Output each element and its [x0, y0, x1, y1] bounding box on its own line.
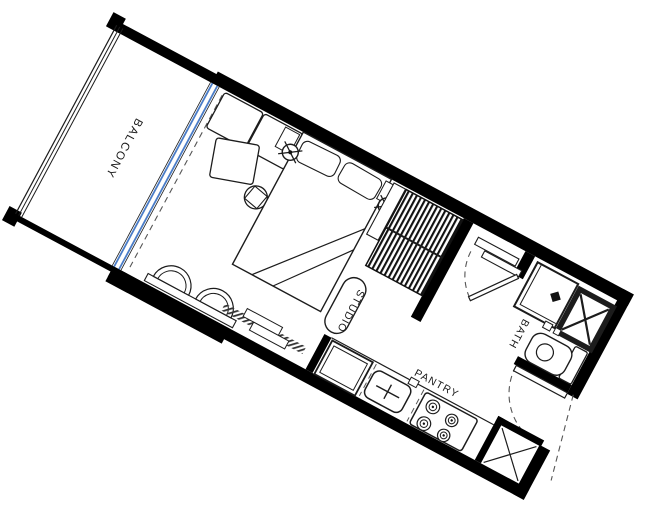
balcony-corner-cap-bottom	[2, 206, 22, 227]
floor-plan-drawing: BALCONY	[0, 0, 648, 523]
floor-plan-canvas: BALCONY	[0, 0, 648, 523]
corridor-dashed-line	[533, 395, 592, 481]
sofa-cushion-angled	[209, 138, 259, 185]
studio-room: STUDIO	[128, 90, 463, 399]
balcony-top-wall	[108, 18, 218, 84]
balcony-label: BALCONY	[103, 116, 145, 180]
bath-door-leaf	[469, 274, 519, 300]
balcony-railing	[16, 25, 123, 217]
balcony-parapet	[12, 213, 115, 272]
pantry-label: PANTRY	[412, 367, 461, 401]
sliding-glass-door	[112, 82, 219, 270]
